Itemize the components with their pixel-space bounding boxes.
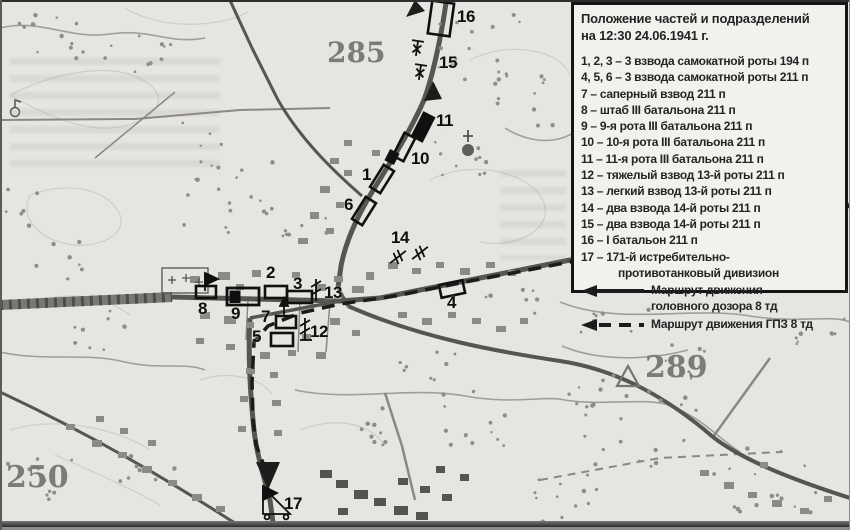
solid-arrow-icon (581, 285, 645, 297)
route-dashed-line1: Маршрут движения ГПЗ 8 тд (651, 316, 813, 332)
marker-label-8: 8 (198, 300, 207, 317)
legend-item: 15 – два взвода 14-й роты 211 п (581, 216, 841, 232)
elevation-label-250: 250 (6, 460, 69, 495)
marker-label-16: 16 (457, 8, 475, 25)
scan-edge-top (0, 0, 850, 2)
scanned-map-page: 285 289 250 1 2 3 4 5 6 7 8 9 10 11 12 1… (0, 0, 850, 530)
legend-routes: Маршрут движения головного дозора 8 тд М… (581, 282, 841, 332)
marker-15-symbol-a (410, 40, 424, 57)
marker-label-5: 5 (252, 328, 261, 345)
patrol-route-arrowhead-top (406, 0, 425, 17)
marker-label-15: 15 (439, 54, 457, 71)
legend-items: 1, 2, 3 – 3 взвода самокатной роты 194 п… (581, 53, 841, 281)
marker-label-13: 13 (324, 284, 342, 301)
scan-edge-left (0, 0, 2, 530)
marker-label-3: 3 (293, 275, 302, 292)
gpz-route-arrowhead (256, 462, 280, 490)
marker-label-6: 6 (344, 196, 353, 213)
marker-2-rect (265, 286, 287, 298)
church-icon (462, 130, 474, 156)
legend-item: 8 – штаб III батальона 211 п (581, 102, 841, 118)
legend-item: 4, 5, 6 – 3 взвода самокатной роты 211 п (581, 69, 841, 85)
marker-label-10: 10 (411, 150, 429, 167)
legend-item: 9 – 9-я рота III батальона 211 п (581, 118, 841, 134)
marker-label-2: 2 (266, 264, 275, 281)
legend-item-continuation: противотанковый дивизион (581, 265, 841, 281)
legend-item: 7 – саперный взвод 211 п (581, 86, 841, 102)
marker-label-11: 11 (436, 112, 453, 129)
legend-title-line1: Положение частей и подразделений (581, 11, 841, 28)
marker-14-gun-b (408, 242, 431, 264)
marker-5-rect (271, 333, 293, 346)
marker-label-9: 9 (231, 305, 240, 322)
legend-title-line2: на 12:30 24.06.1941 г. (581, 28, 841, 45)
legend-item: 11 – 11-я рота III батальона 211 п (581, 151, 841, 167)
route-solid-line1: Маршрут движения (651, 282, 777, 298)
dashed-arrow-icon (581, 319, 645, 331)
legend-item: 1, 2, 3 – 3 взвода самокатной роты 194 п (581, 53, 841, 69)
marker-label-17: 17 (284, 495, 302, 512)
legend-panel: Положение частей и подразделений на 12:3… (571, 2, 848, 293)
bleedthrough-smudge (500, 170, 566, 260)
cemetery-symbol (162, 268, 208, 293)
marker-label-7: 7 (261, 308, 270, 325)
legend-route-solid: Маршрут движения головного дозора 8 тд (581, 282, 841, 314)
village-dark-row (320, 466, 469, 520)
legend-title: Положение частей и подразделений на 12:3… (581, 11, 841, 44)
bleedthrough-smudge (10, 58, 220, 168)
legend-item: 16 – I батальон 211 п (581, 232, 841, 248)
marker-10-solid (386, 151, 398, 164)
route-solid-line2: головного дозора 8 тд (651, 298, 777, 314)
marker-9-solid (230, 291, 241, 304)
legend-route-dashed: Маршрут движения ГПЗ 8 тд (581, 316, 841, 332)
elevation-label-289: 289 (645, 350, 708, 385)
legend-item: 17 – 171-й истребительно- (581, 249, 841, 265)
marker-label-4: 4 (447, 294, 456, 311)
legend-item: 13 – легкий взвод 13-й роты 211 п (581, 183, 841, 199)
marker-label-12: 12 (310, 323, 328, 340)
marker-label-14: 14 (391, 229, 409, 246)
legend-item: 10 – 10-я рота III батальона 211 п (581, 134, 841, 150)
legend-item: 12 – тяжелый взвод 13-й роты 211 п (581, 167, 841, 183)
legend-item: 14 – два взвода 14-й роты 211 п (581, 200, 841, 216)
marker-15-symbol-b (413, 64, 427, 81)
elevation-label-285: 285 (327, 36, 385, 69)
marker-label-1: 1 (362, 166, 371, 183)
